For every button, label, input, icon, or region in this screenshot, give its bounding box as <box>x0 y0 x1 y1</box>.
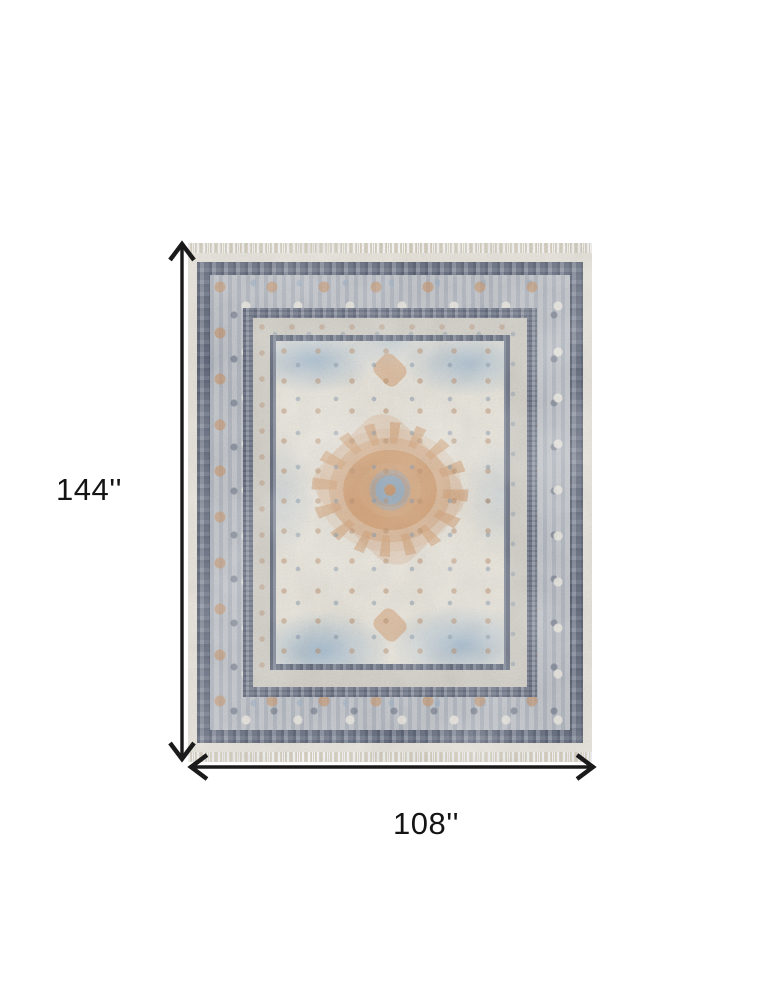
width-dimension-label: 108'' <box>393 806 459 842</box>
rug-pendant-ornament-bottom <box>370 605 410 645</box>
rug-fringe-top <box>190 243 590 253</box>
rug-field <box>276 341 504 664</box>
rug-product-image <box>188 243 592 762</box>
rug-pendant-ornament-top <box>370 350 410 390</box>
medallion-petal-ring <box>301 413 479 566</box>
rug-fringe-bottom <box>190 752 590 762</box>
height-dimension-label: 144'' <box>56 472 122 508</box>
medallion-lozenge <box>304 403 476 575</box>
rug-center-medallion <box>312 423 468 557</box>
medallion-core <box>362 462 418 518</box>
dimension-diagram: 144'' 108'' <box>0 0 781 1000</box>
medallion-disc <box>312 423 468 557</box>
rug-body <box>188 253 592 752</box>
